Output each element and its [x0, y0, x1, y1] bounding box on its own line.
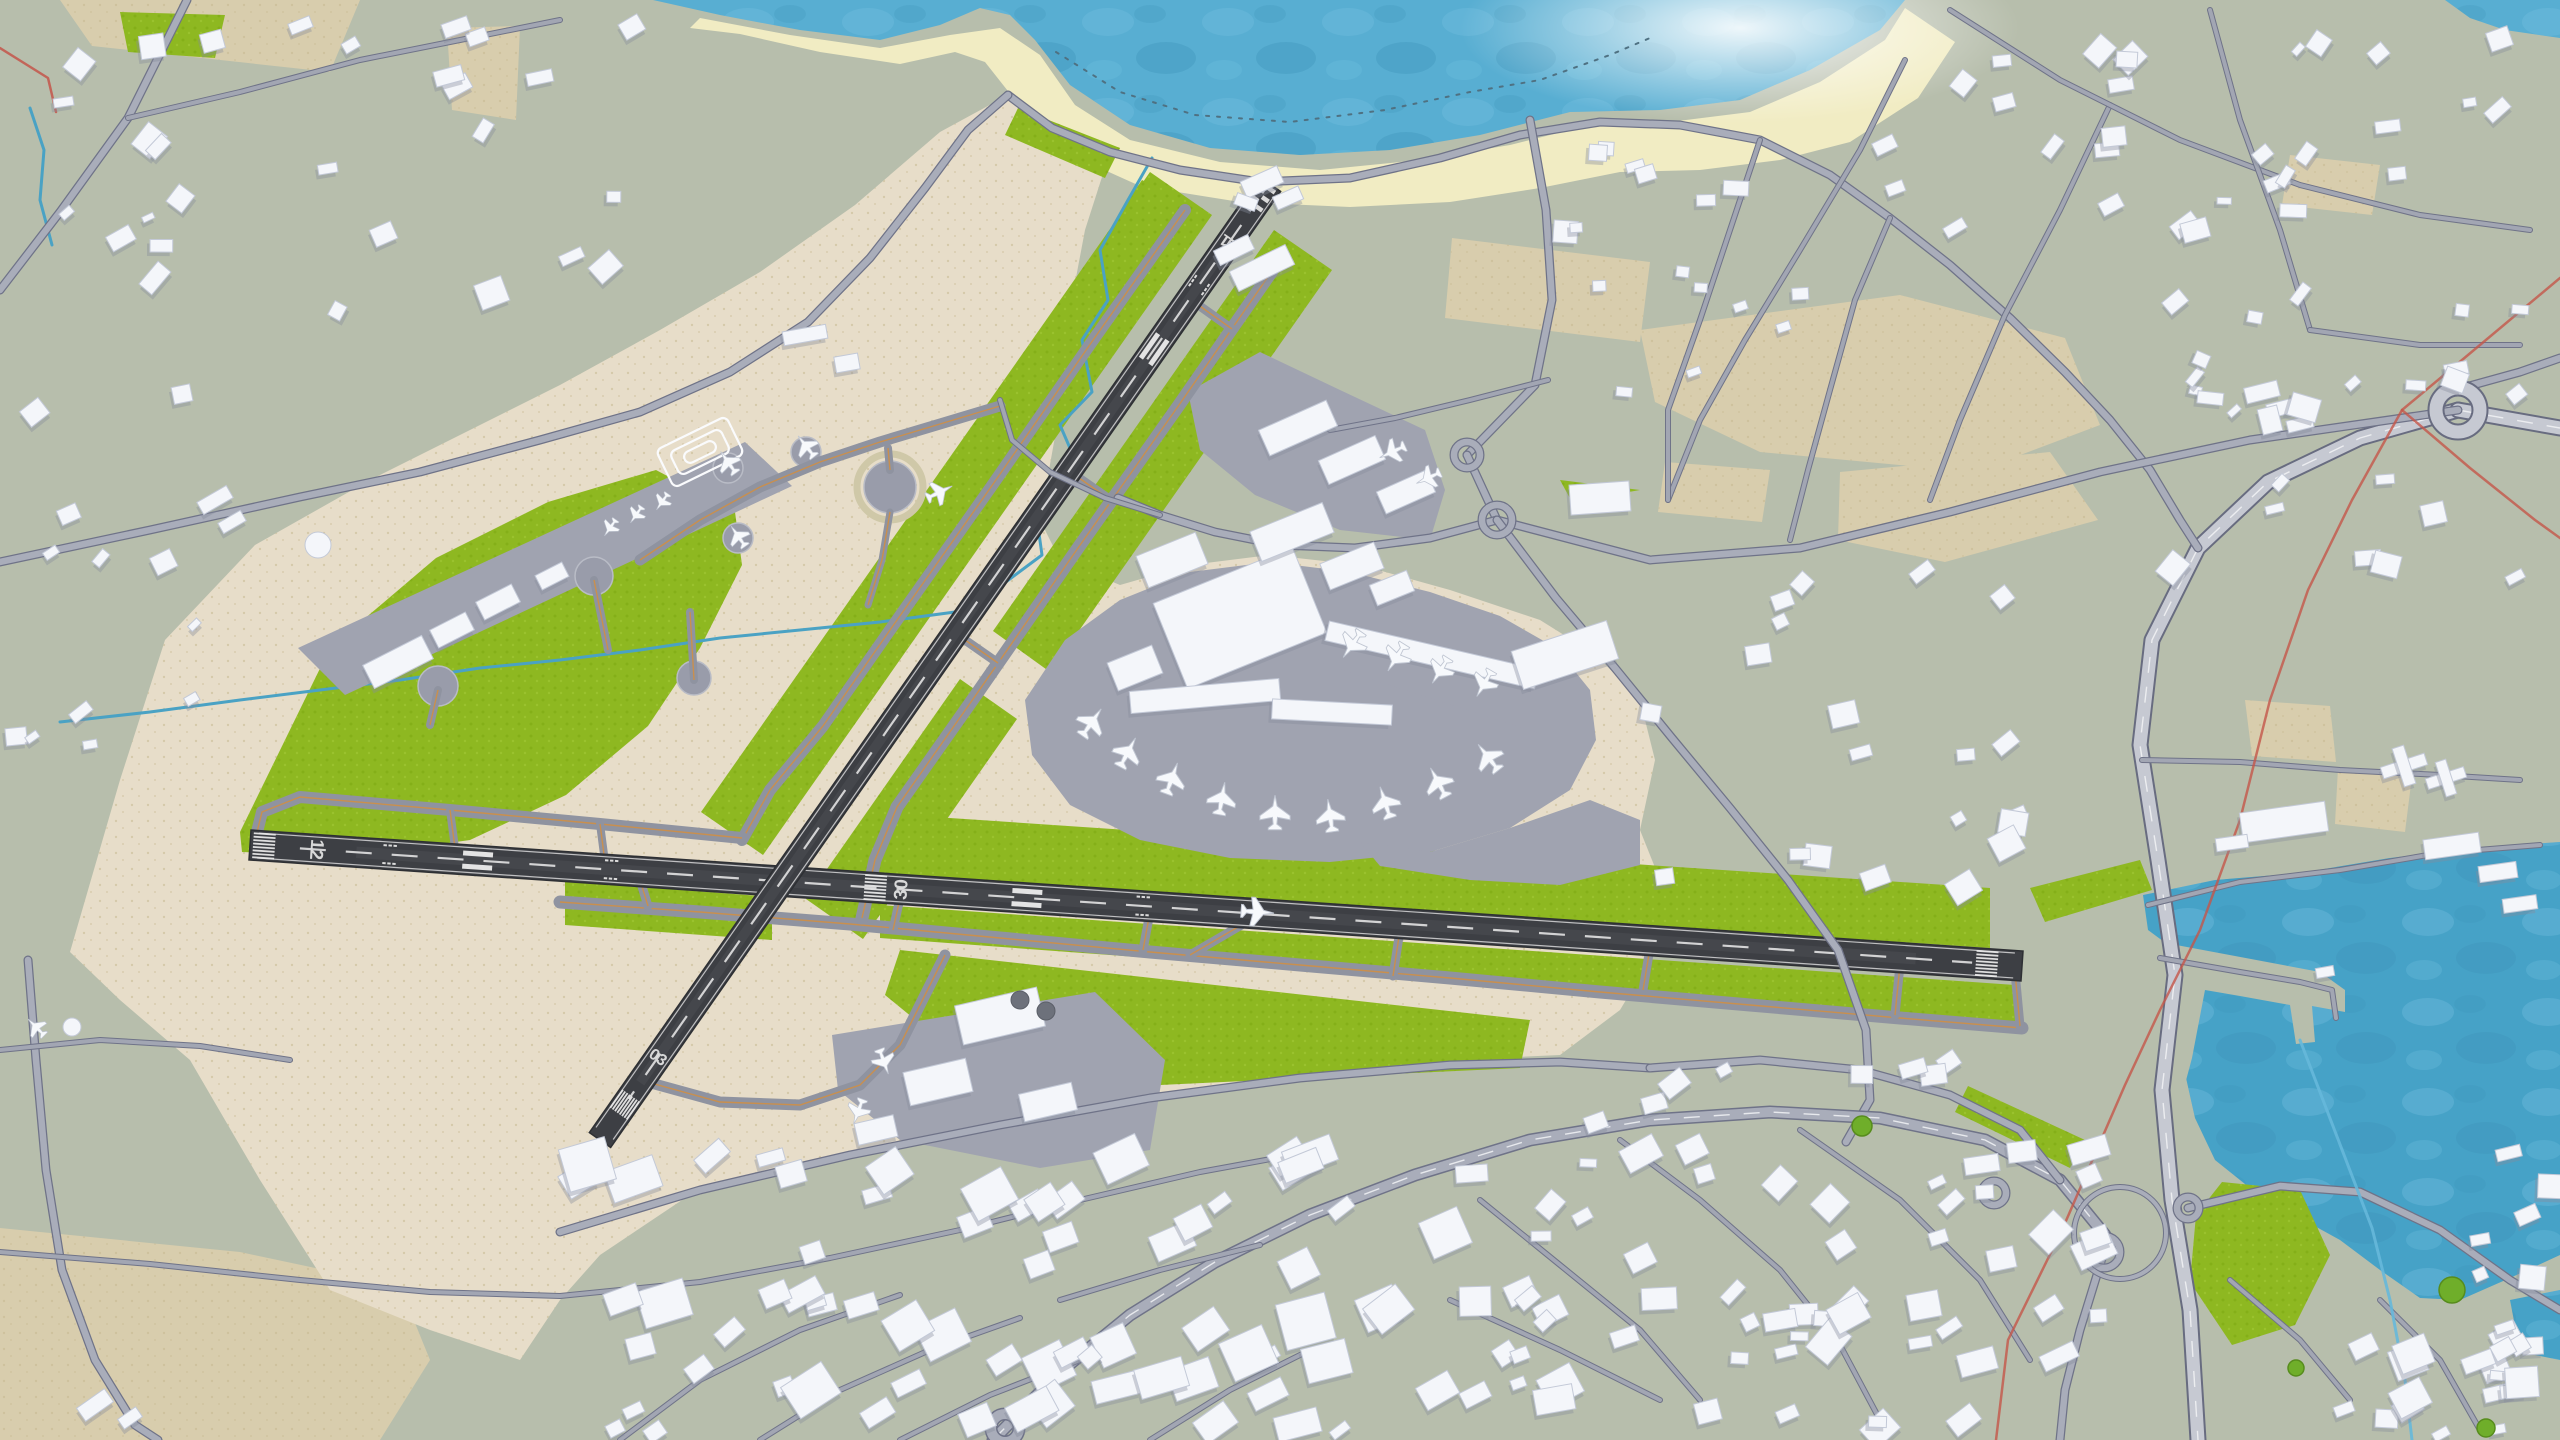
map-3d-render: 12302103 [0, 0, 2560, 1440]
town-east-buildings-36 [1972, 1185, 1994, 1204]
right-mid-hamlets-3 [2373, 474, 2396, 489]
town-east-buildings-39 [1903, 1290, 1943, 1326]
field-right-1-texture [2245, 700, 2336, 762]
top-right-hamlets-3 [2098, 126, 2127, 152]
landside-east-buildings-2 [1954, 748, 1976, 765]
top-center-hamlets-6 [1720, 180, 1749, 200]
tank-pad-2 [1037, 1002, 1055, 1020]
carpark-tan-landside-texture [1658, 462, 1770, 522]
top-left-hamlets-21 [147, 239, 173, 256]
se-corner-buildings-2-4 [2534, 1174, 2560, 1203]
town-east-buildings-13 [1638, 1287, 1678, 1315]
tree-0 [1852, 1116, 1872, 1136]
tree-3 [2288, 1360, 2304, 1376]
landside-east-buildings-6 [1742, 643, 1773, 670]
tree-1 [2439, 1277, 2465, 1303]
se-corner-buildings-2-5 [2515, 1264, 2546, 1295]
top-left-hamlets-2 [135, 33, 166, 64]
tree-2 [2477, 1419, 2495, 1437]
right-mid-hamlets-11 [2193, 390, 2223, 409]
landside-east-buildings-13 [1787, 848, 1811, 864]
se-corner-buildings-15 [2502, 1366, 2540, 1403]
top-right-hamlets-13 [2385, 166, 2407, 185]
fuel-tank-southwest [63, 1018, 81, 1036]
tank-pad-1 [1011, 991, 1029, 1009]
svg-text:12: 12 [306, 839, 328, 861]
top-center-hamlets-8 [1693, 194, 1715, 210]
fuel-tank-west [305, 532, 331, 558]
map-canvas[interactable]: 12302103 [0, 0, 2560, 1440]
left-rural-buildings-3 [168, 384, 194, 409]
big-warehouse-landside [1566, 481, 1631, 519]
svg-text:30: 30 [889, 878, 911, 900]
top-right-hamlets-11 [2277, 204, 2307, 222]
town-east-buildings-35 [1452, 1164, 1488, 1187]
town-east-buildings-38 [1528, 1231, 1551, 1245]
top-right-hamlets-23 [1989, 54, 2012, 72]
town-strip-buildings-2 [1848, 1065, 1873, 1087]
left-rural-buildings-2 [2, 727, 28, 751]
town-east-buildings-42 [2004, 1140, 2038, 1168]
landside-east-buildings-1 [1652, 868, 1676, 890]
town-east-buildings-41 [1456, 1286, 1491, 1320]
